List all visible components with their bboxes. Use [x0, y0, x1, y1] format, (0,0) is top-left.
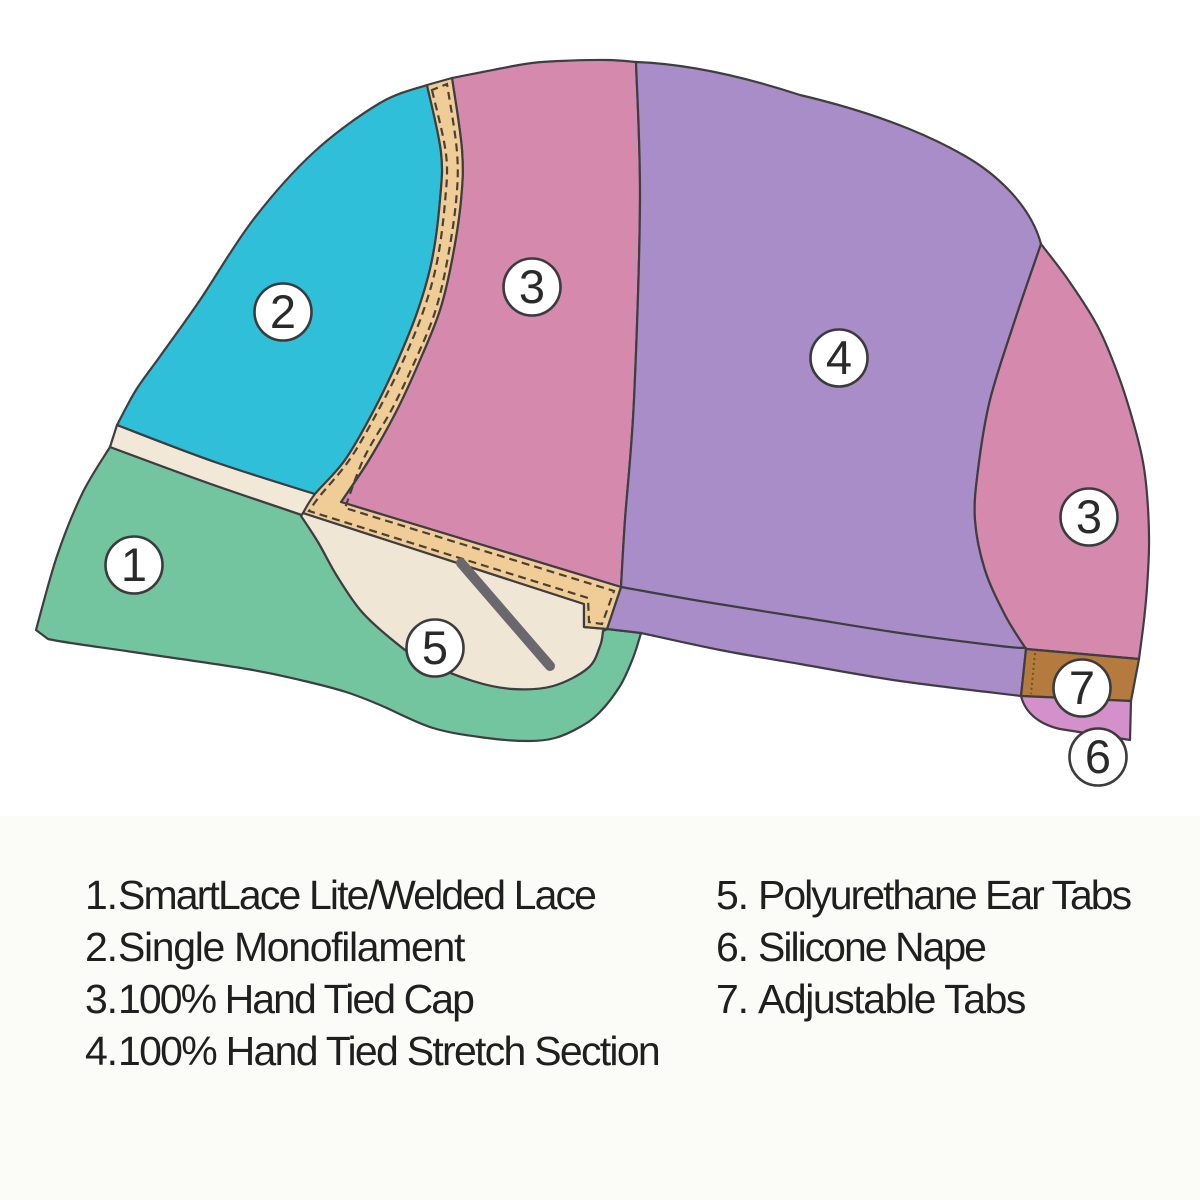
svg-text:Single Monofilament: Single Monofilament [118, 924, 466, 970]
svg-text:3.: 3. [85, 976, 117, 1022]
svg-text:4.: 4. [85, 1028, 117, 1074]
svg-text:2.: 2. [85, 924, 117, 970]
svg-text:3: 3 [519, 260, 545, 313]
svg-text:Adjustable Tabs: Adjustable Tabs [758, 976, 1026, 1022]
svg-text:6.: 6. [716, 924, 748, 970]
svg-text:6: 6 [1085, 730, 1111, 783]
svg-text:Polyurethane Ear Tabs: Polyurethane Ear Tabs [758, 872, 1132, 918]
svg-text:100% Hand Tied Stretch Section: 100% Hand Tied Stretch Section [118, 1028, 659, 1074]
svg-text:7: 7 [1069, 661, 1095, 714]
svg-text:4: 4 [826, 331, 852, 384]
svg-text:SmartLace Lite/Welded Lace: SmartLace Lite/Welded Lace [118, 872, 595, 918]
svg-text:5: 5 [422, 621, 448, 674]
svg-text:1.: 1. [85, 872, 117, 918]
svg-text:Silicone Nape: Silicone Nape [758, 924, 985, 970]
svg-text:7.: 7. [716, 976, 748, 1022]
svg-text:5.: 5. [716, 872, 748, 918]
svg-text:3: 3 [1076, 490, 1102, 543]
svg-text:100% Hand Tied Cap: 100% Hand Tied Cap [118, 976, 474, 1022]
svg-text:1: 1 [121, 538, 147, 591]
svg-text:2: 2 [270, 285, 296, 338]
